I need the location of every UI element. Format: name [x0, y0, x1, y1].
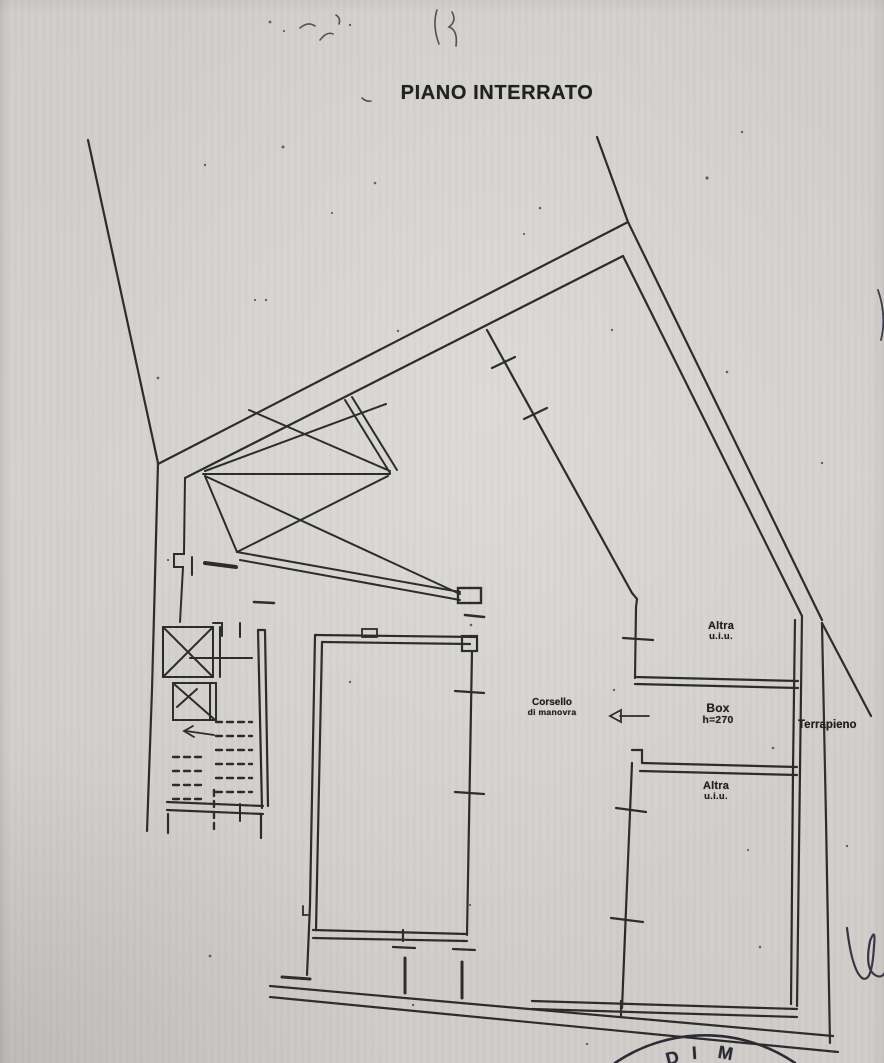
label-altra-uiu-bottom-line2: u.i.u.: [684, 792, 748, 802]
tick-below-block: [465, 615, 484, 617]
floorplan-drawing: [0, 0, 884, 1063]
elevator-shaft-1: [163, 623, 252, 677]
elevator-shaft-2: [173, 683, 216, 720]
label-corsello: Corsello di manovra: [508, 697, 596, 717]
right-wall-inner: [791, 620, 795, 1004]
divider-wall-b: [265, 631, 268, 806]
wall-se-inner: [623, 256, 802, 616]
shaft2-x-icon: [174, 684, 214, 719]
pen-stroke: [336, 15, 340, 24]
lot-line-right: [822, 623, 830, 1043]
stub-tick-1: [393, 947, 415, 948]
wall-bottom-outer: [270, 986, 833, 1036]
label-box: Box h=270: [686, 702, 750, 727]
photocopy-speckles: [157, 21, 849, 1046]
scanned-floorplan-page: PIANO INTERRATO: [0, 0, 884, 1063]
central-bottom-a: [313, 930, 467, 934]
handwriting-bottom: [847, 290, 884, 1004]
tick-west-2: [254, 602, 274, 603]
ramp-south-wall-a: [237, 552, 460, 592]
pen-stroke: [449, 12, 456, 46]
box-altra-wall-a: [642, 763, 797, 767]
partition-diagonal: [487, 330, 637, 678]
central-right-tick2: [455, 792, 484, 794]
wall-left-vertical: [147, 463, 158, 831]
shaft1-x-icon: [163, 627, 213, 677]
ramp-area: [203, 397, 484, 617]
ramp-threshold: [205, 563, 236, 567]
box-altra-notch: [632, 750, 642, 763]
pen-signature: [847, 928, 884, 1004]
ramp-lower-left-edge: [205, 476, 237, 552]
ramp-x2-b: [237, 476, 388, 552]
shaft2-x2-icon: [177, 689, 197, 707]
label-altra-uiu-top: Altra u.i.u.: [690, 620, 752, 642]
altra-box-wall-b: [635, 684, 798, 688]
stair-block-walls: [167, 630, 268, 838]
wall-ne-outer: [158, 222, 628, 464]
west-wall-notched: [174, 478, 185, 622]
pen-edge-mark: [878, 290, 883, 340]
altra2-left-wall: [622, 763, 632, 1008]
central-right-tick1: [455, 691, 484, 693]
pen-stroke: [320, 33, 333, 40]
ramp-south-wall-b: [240, 560, 460, 600]
stamp-letter-m: M: [716, 1042, 734, 1063]
wall-ne-inner: [185, 256, 623, 478]
altra-box-wall-a: [635, 677, 798, 681]
wall-se-outer: [628, 222, 822, 620]
label-box-line1: Box: [706, 701, 729, 715]
box-altra-wall-b: [640, 771, 797, 775]
central-left-b: [316, 642, 322, 930]
central-bottom-b: [313, 938, 467, 941]
label-box-line2: h=270: [686, 715, 750, 726]
label-altra-uiu-top-line2: u.i.u.: [690, 632, 752, 642]
wall-top-spur: [597, 137, 628, 222]
label-terrapieno: Terrapieno: [798, 719, 884, 732]
label-corsello-line2: di manovra: [508, 708, 596, 717]
altra-top-tick: [623, 638, 653, 640]
ramp-x1-a: [205, 404, 386, 471]
label-altra-uiu-bottom: Altra u.i.u.: [684, 780, 748, 802]
central-left-a: [307, 635, 315, 975]
terrapieno-boundary: [822, 623, 871, 716]
central-top-b: [322, 642, 470, 644]
wall-bottom-left-stub: [282, 977, 310, 979]
rooms-bottom-a: [532, 1001, 797, 1009]
pen-stroke: [300, 24, 315, 28]
wall-left-diagonal: [88, 140, 158, 463]
central-room-walls: [303, 629, 484, 998]
altra2-tick2: [611, 918, 643, 922]
corsello-arrow-icon: [610, 710, 649, 722]
ramp-wall-end-block: [458, 588, 481, 603]
stub-tick-2: [453, 949, 475, 950]
handwriting-top: [300, 10, 456, 101]
outer-boundary-walls: [88, 137, 871, 1052]
pen-stroke: [435, 10, 439, 44]
stair-arrow-icon: [184, 726, 214, 737]
right-wall-outer: [797, 616, 802, 1006]
right-rooms-walls: [532, 616, 802, 1017]
partition-line: [487, 330, 637, 678]
central-left-notch: [303, 906, 308, 915]
pen-stroke: [362, 98, 371, 101]
central-top-a: [315, 635, 477, 637]
divider-wall-a: [258, 630, 262, 808]
